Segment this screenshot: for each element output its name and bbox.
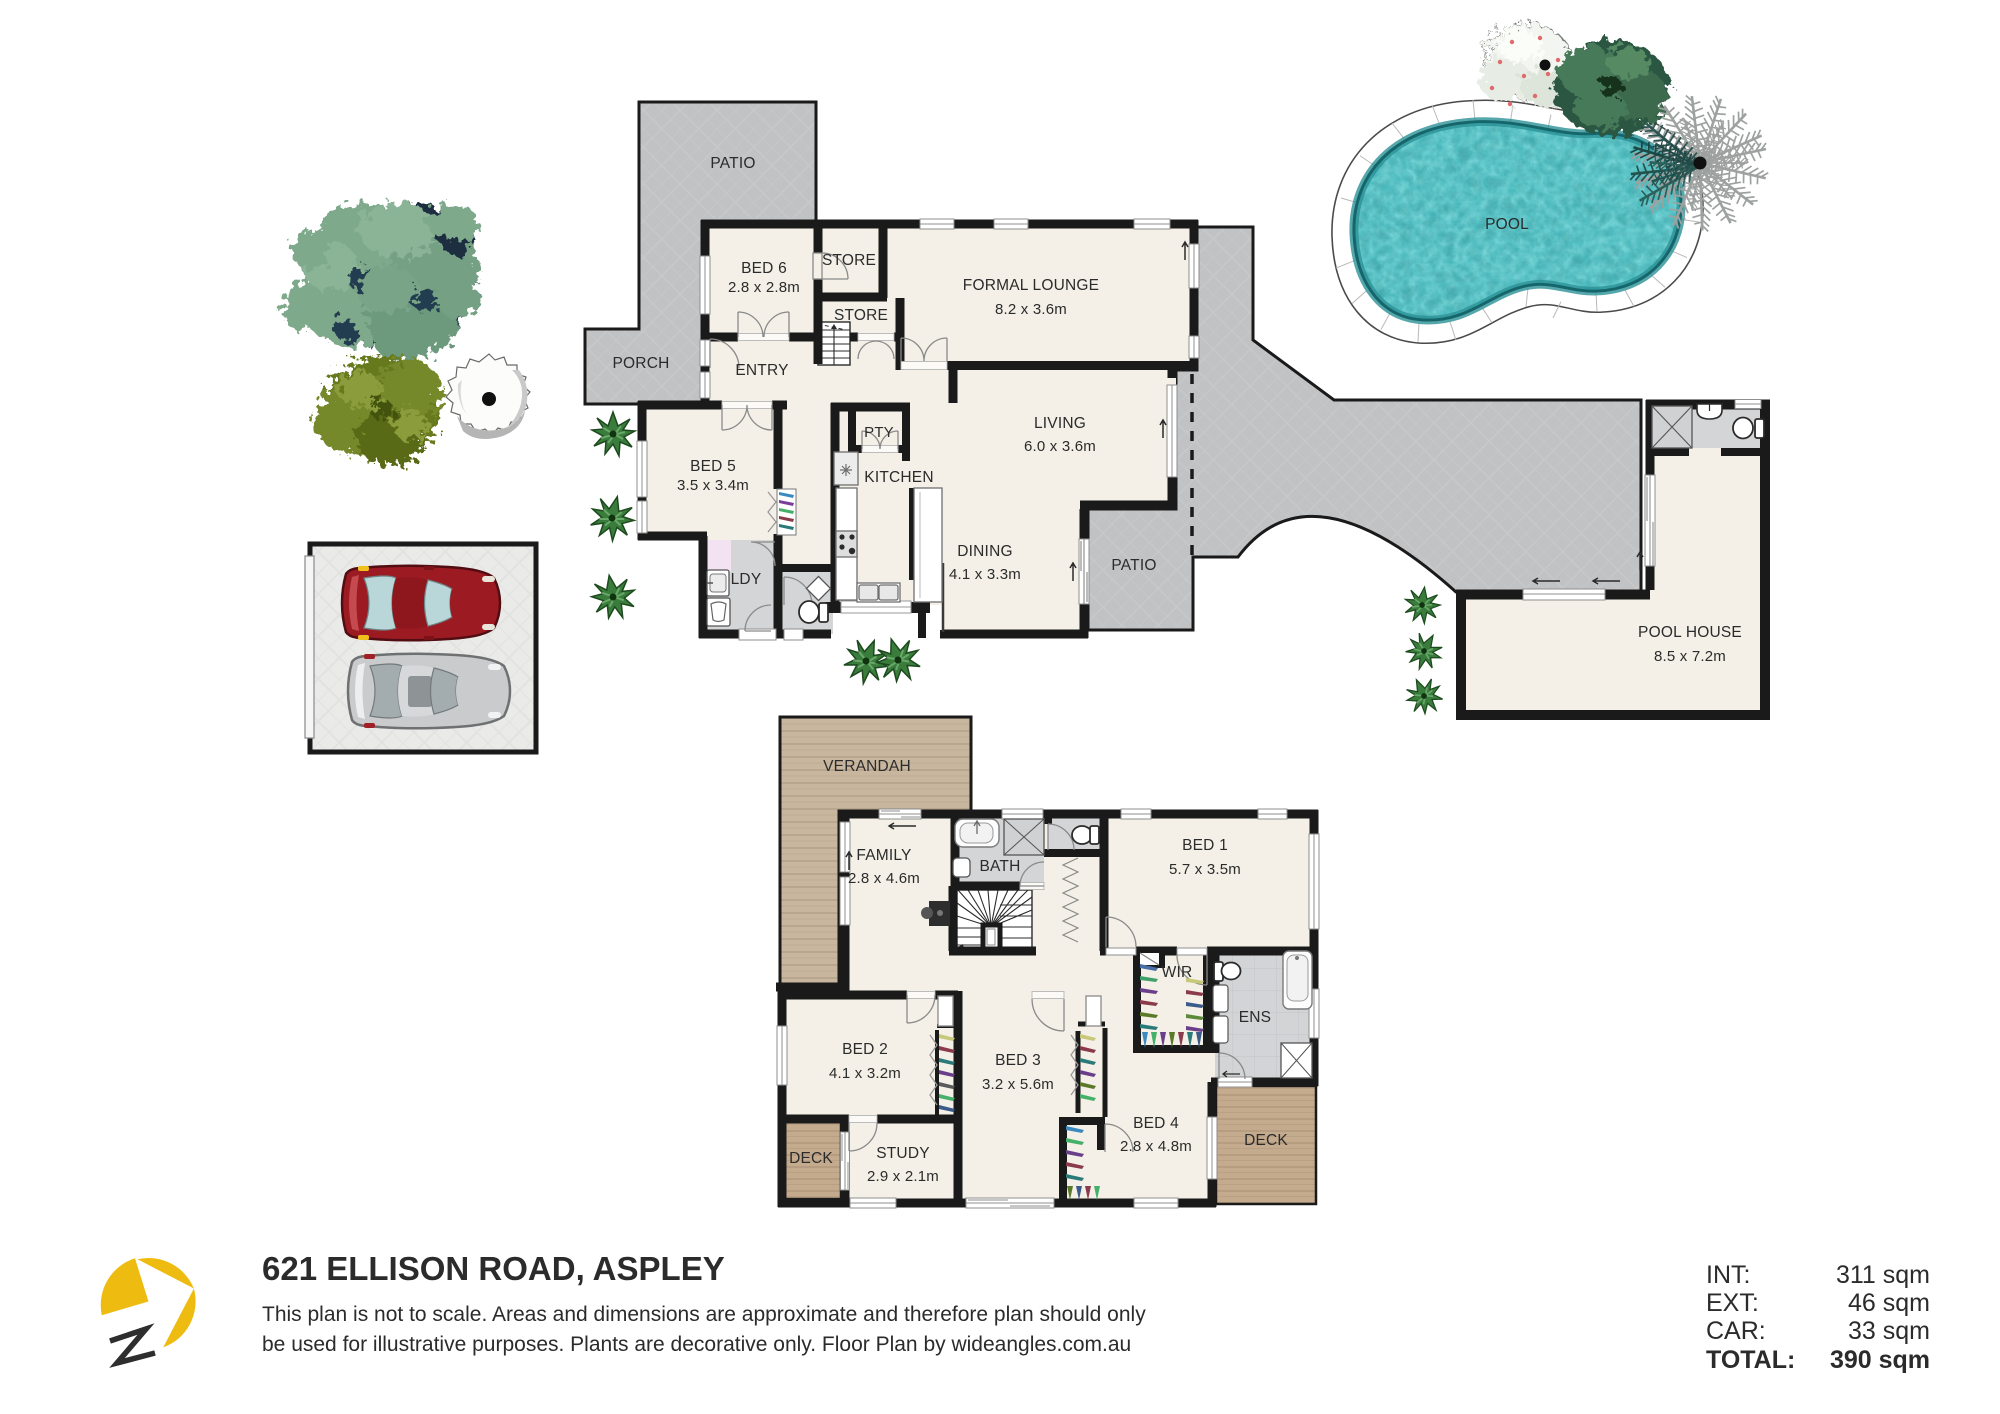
svg-text:FAMILY: FAMILY (856, 847, 911, 864)
svg-text:PORCH: PORCH (613, 355, 670, 372)
svg-text:BED 5: BED 5 (690, 458, 736, 475)
svg-text:BATH: BATH (980, 858, 1021, 875)
svg-text:3.5 x 3.4m: 3.5 x 3.4m (677, 477, 749, 494)
svg-text:8.2 x 3.6m: 8.2 x 3.6m (995, 301, 1067, 318)
svg-text:BED 4: BED 4 (1133, 1115, 1179, 1132)
svg-text:390 sqm: 390 sqm (1830, 1346, 1930, 1374)
svg-text:DECK: DECK (1244, 1132, 1288, 1149)
svg-text:2.8 x 4.8m: 2.8 x 4.8m (1120, 1138, 1192, 1155)
svg-text:6.0 x 3.6m: 6.0 x 3.6m (1024, 438, 1096, 455)
svg-text:DECK: DECK (789, 1150, 833, 1167)
svg-text:BED 1: BED 1 (1182, 837, 1228, 854)
svg-text:4.1 x 3.2m: 4.1 x 3.2m (829, 1065, 901, 1082)
svg-text:3.2 x 5.6m: 3.2 x 5.6m (982, 1076, 1054, 1093)
svg-text:EXT:: EXT: (1706, 1289, 1759, 1317)
svg-text:LDY: LDY (731, 571, 762, 588)
svg-text:PATIO: PATIO (1111, 557, 1156, 574)
svg-text:ENS: ENS (1239, 1009, 1271, 1026)
svg-text:PTY: PTY (864, 424, 894, 441)
svg-text:BED 2: BED 2 (842, 1041, 888, 1058)
svg-text:ENTRY: ENTRY (735, 362, 788, 379)
svg-text:STORE: STORE (822, 252, 876, 269)
svg-text:5.7 x 3.5m: 5.7 x 3.5m (1169, 861, 1241, 878)
svg-text:33 sqm: 33 sqm (1848, 1317, 1930, 1345)
svg-text:8.5 x 7.2m: 8.5 x 7.2m (1654, 648, 1726, 665)
svg-text:POOL HOUSE: POOL HOUSE (1638, 624, 1742, 641)
svg-text:CAR:: CAR: (1706, 1317, 1766, 1345)
svg-text:4.1 x 3.3m: 4.1 x 3.3m (949, 566, 1021, 583)
svg-text:STUDY: STUDY (876, 1145, 930, 1162)
svg-text:STORE: STORE (834, 307, 888, 324)
svg-text:2.8 x 4.6m: 2.8 x 4.6m (848, 870, 920, 887)
svg-text:FORMAL LOUNGE: FORMAL LOUNGE (963, 277, 1099, 294)
svg-text:be used for illustrative purpo: be used for illustrative purposes. Plant… (262, 1333, 1131, 1356)
svg-text:DINING: DINING (957, 543, 1012, 560)
svg-text:621 ELLISON ROAD, ASPLEY: 621 ELLISON ROAD, ASPLEY (262, 1250, 725, 1287)
svg-text:This plan is not to scale. Are: This plan is not to scale. Areas and dim… (262, 1303, 1146, 1326)
svg-text:VERANDAH: VERANDAH (823, 758, 911, 775)
svg-text:2.8 x 2.8m: 2.8 x 2.8m (728, 279, 800, 296)
svg-text:BED 3: BED 3 (995, 1052, 1041, 1069)
svg-text:KITCHEN: KITCHEN (864, 469, 933, 486)
svg-text:46 sqm: 46 sqm (1848, 1289, 1930, 1317)
svg-text:BED 6: BED 6 (741, 260, 787, 277)
svg-text:TOTAL:: TOTAL: (1706, 1346, 1795, 1374)
svg-text:2.9 x 2.1m: 2.9 x 2.1m (867, 1168, 939, 1185)
svg-text:311 sqm: 311 sqm (1836, 1261, 1930, 1289)
svg-text:POOL: POOL (1485, 216, 1529, 233)
svg-text:INT:: INT: (1706, 1261, 1750, 1289)
svg-text:WIR: WIR (1162, 964, 1193, 981)
svg-text:PATIO: PATIO (710, 155, 755, 172)
svg-text:LIVING: LIVING (1034, 415, 1086, 432)
